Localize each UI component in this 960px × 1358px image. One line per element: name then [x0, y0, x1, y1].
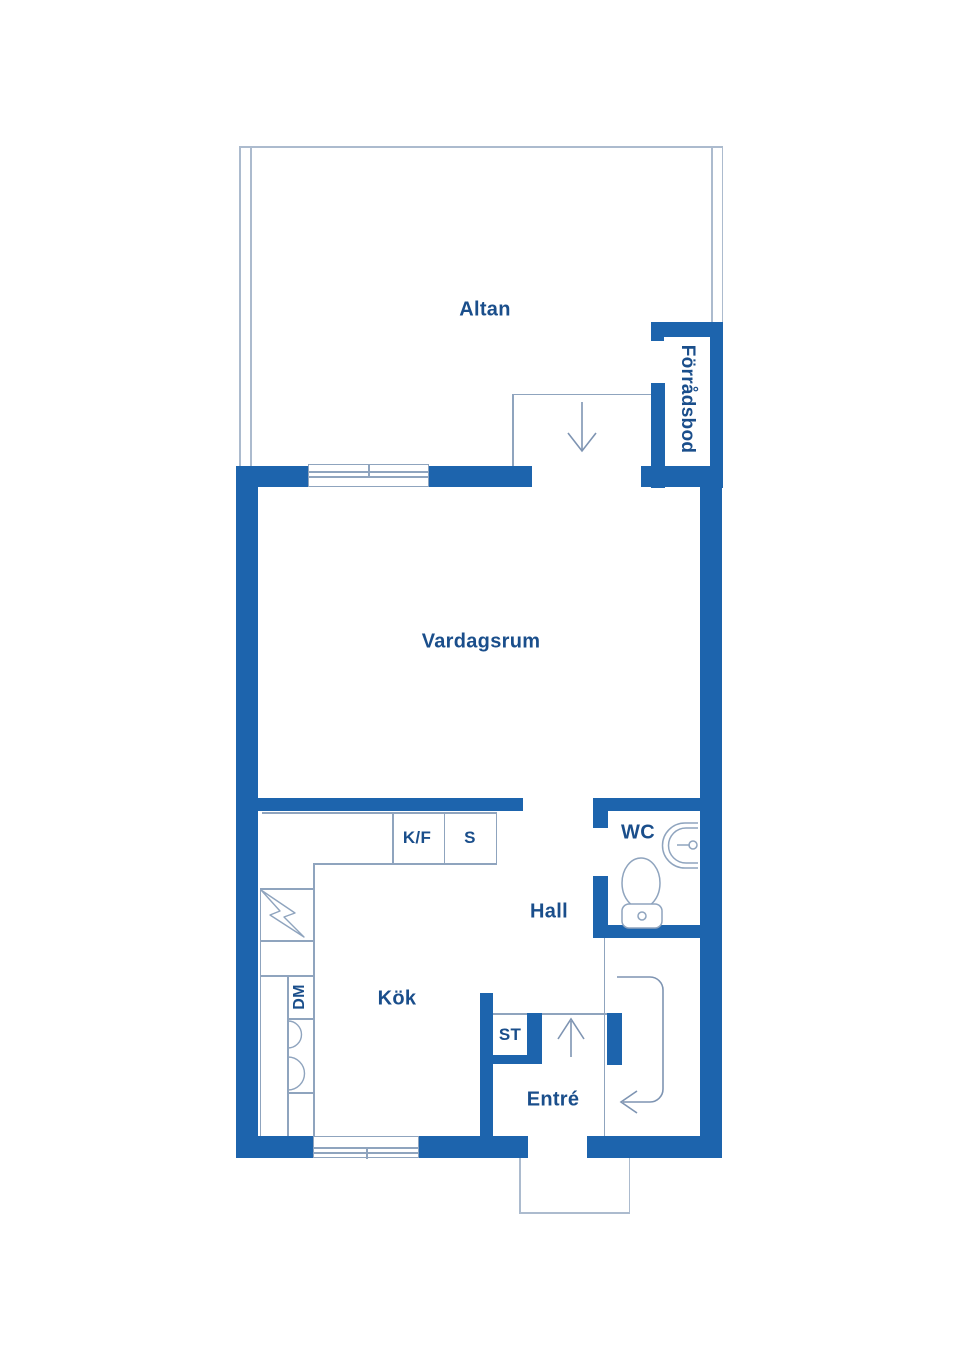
room-label-wc: WC — [621, 822, 655, 845]
room-label-altan: Altan — [459, 299, 511, 322]
room-label-vardagsrum: Vardagsrum — [422, 631, 541, 654]
wash-basin-icon — [663, 823, 699, 868]
entrance-path-arrow-icon — [617, 977, 663, 1113]
symbols-overlay — [0, 0, 960, 1358]
lightning-bolt-icon — [261, 890, 304, 937]
floor-plan: Altan Förrådsbod Vardagsrum Kök Hall WC … — [0, 0, 960, 1358]
fixture-label-dm: DM — [291, 984, 309, 1009]
toilet-icon — [622, 858, 662, 928]
kitchen-basin-arc-1 — [288, 1021, 302, 1048]
room-label-entre: Entré — [527, 1089, 580, 1112]
room-label-forradsbod: Förrådsbod — [676, 345, 698, 454]
kitchen-basin-arc-2 — [288, 1057, 305, 1090]
terrace-door-arrow-icon — [568, 402, 596, 451]
room-label-hall: Hall — [530, 901, 568, 924]
fixture-label-s: S — [464, 828, 476, 848]
fixture-label-st: ST — [499, 1025, 521, 1045]
room-label-kok: Kök — [378, 988, 417, 1011]
fixture-label-kf: K/F — [403, 828, 431, 848]
entrance-arrow-icon — [558, 1019, 584, 1057]
